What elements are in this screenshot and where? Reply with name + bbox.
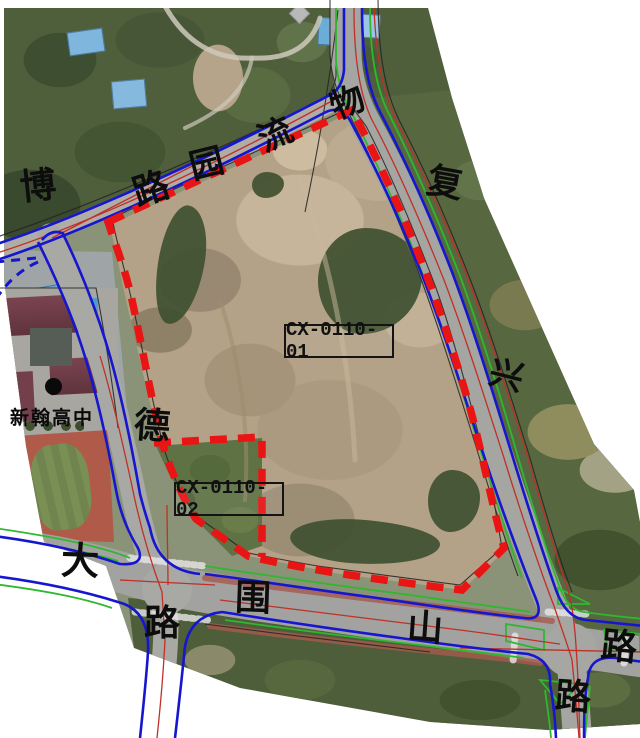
parcel-id: CX-0110-01 [286, 319, 392, 363]
road-name-char: 大 [60, 542, 99, 581]
road-name-char: 路 [128, 166, 173, 211]
map-canvas: 博 路 园 流 物 复 兴 德 大 路 围 山 路 路 CX-0110-01 C… [0, 0, 640, 738]
road-name-char: 路 [599, 627, 639, 667]
road-name-char: 山 [406, 609, 444, 647]
parcel-label-box: CX-0110-02 [174, 482, 284, 516]
school-location-dot [45, 378, 62, 395]
road-name-char: 博 [18, 166, 58, 206]
road-name-char: 流 [254, 114, 299, 159]
road-name-char: 路 [144, 605, 180, 641]
road-name-char: 复 [424, 162, 466, 204]
school-name-label: 新翰高中 [10, 403, 94, 430]
parcel-id: CX-0110-02 [176, 477, 282, 521]
road-name-char: 路 [554, 678, 592, 716]
label-layer: 博 路 园 流 物 复 兴 德 大 路 围 山 路 路 CX-0110-01 C… [0, 0, 640, 738]
road-name-char: 园 [186, 144, 227, 185]
parcel-label-box: CX-0110-01 [284, 324, 394, 358]
road-name-char: 围 [234, 579, 271, 616]
road-name-char: 德 [133, 407, 171, 445]
road-name-char: 兴 [485, 356, 526, 397]
road-name-char: 物 [326, 82, 370, 126]
